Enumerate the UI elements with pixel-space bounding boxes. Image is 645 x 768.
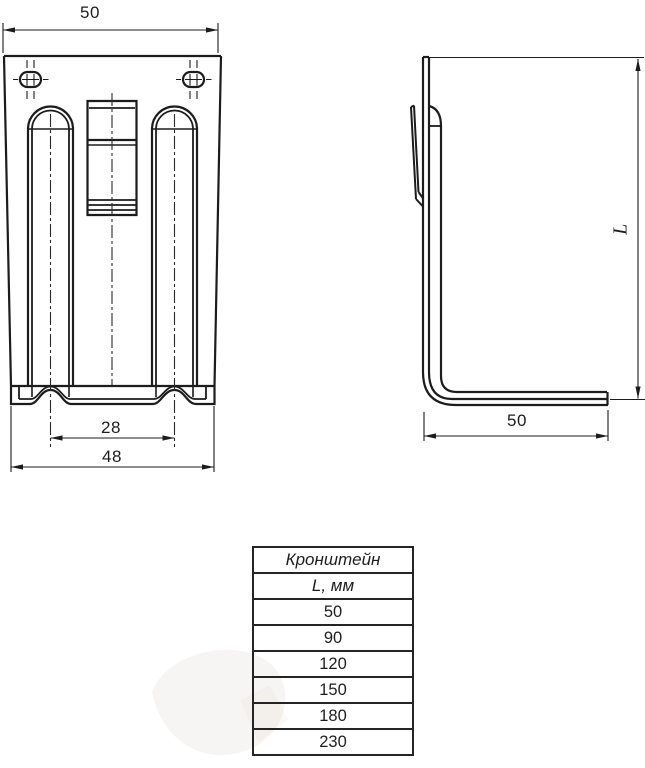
dim-label-front-width: 50 [80, 4, 100, 21]
dim-label-height-L: L [613, 223, 630, 235]
table-cell: 180 [253, 703, 413, 729]
table-title-cell: Кронштейн [253, 547, 413, 573]
table-cell: 230 [253, 729, 413, 755]
table-cell: 150 [253, 677, 413, 703]
table-cell: 50 [253, 599, 413, 625]
side-tab [411, 106, 424, 208]
table-header-cell: L, мм [253, 573, 413, 599]
side-dimensions [424, 58, 645, 442]
table-row: 150 [253, 677, 413, 703]
table-row: 90 [253, 625, 413, 651]
table-row: 230 [253, 729, 413, 755]
table-header-row: L, мм [253, 573, 413, 599]
dim-label-slot-spacing: 28 [101, 419, 121, 436]
drawing-canvas: 50 28 48 50 L Кронштейн L, мм 50 90 120 … [0, 0, 645, 768]
table-row: 180 [253, 703, 413, 729]
table-row: 120 [253, 651, 413, 677]
dim-label-front-bottom-width: 48 [102, 448, 122, 465]
side-view [411, 57, 608, 405]
table-row: 50 [253, 599, 413, 625]
table-title-row: Кронштейн [253, 547, 413, 573]
dim-label-leg-length: 50 [507, 412, 527, 429]
side-dimension-arrows [424, 59, 641, 439]
table-cell: 90 [253, 625, 413, 651]
size-table: Кронштейн L, мм 50 90 120 150 180 230 [252, 546, 414, 756]
table-cell: 120 [253, 651, 413, 677]
